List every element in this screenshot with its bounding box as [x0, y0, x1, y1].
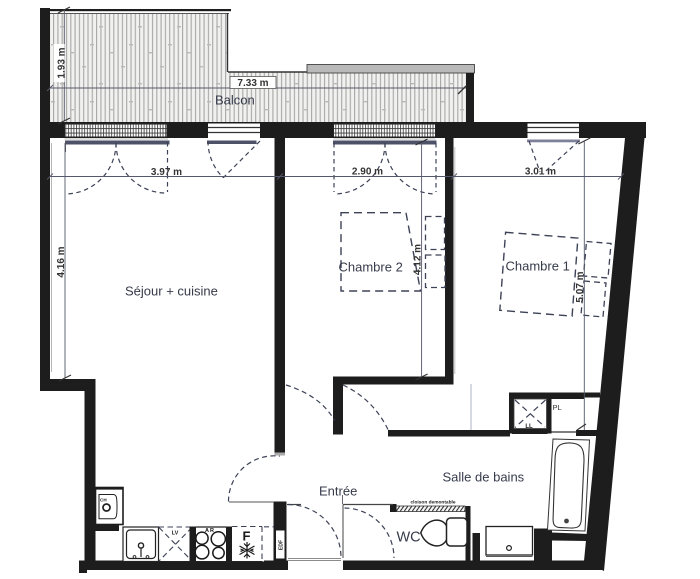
- svg-text:EDF: EDF: [279, 540, 285, 550]
- svg-text:LV: LV: [172, 531, 179, 537]
- svg-text:3.01 m: 3.01 m: [525, 167, 556, 178]
- svg-text:cloison demontable: cloison demontable: [410, 500, 455, 506]
- svg-text:7.33 m: 7.33 m: [237, 78, 268, 89]
- svg-text:LL: LL: [525, 424, 533, 430]
- svg-text:Entrée: Entrée: [319, 484, 357, 499]
- svg-text:F: F: [243, 529, 251, 544]
- svg-text:WC: WC: [397, 530, 421, 546]
- svg-text:Chambre 1: Chambre 1: [506, 259, 570, 274]
- svg-text:1.93 m: 1.93 m: [57, 47, 68, 78]
- svg-text:5.07 m: 5.07 m: [575, 271, 586, 302]
- svg-text:CH: CH: [100, 498, 107, 503]
- svg-text:4.16 m: 4.16 m: [56, 246, 67, 277]
- svg-text:3.97 m: 3.97 m: [151, 167, 182, 178]
- svg-text:Balcon: Balcon: [215, 93, 255, 108]
- svg-text:Chambre 2: Chambre 2: [339, 260, 403, 275]
- svg-text:2.90 m: 2.90 m: [352, 167, 383, 178]
- svg-text:Séjour + cuisine: Séjour + cuisine: [125, 284, 218, 299]
- svg-text:Salle de bains: Salle de bains: [443, 470, 525, 485]
- svg-text:PL: PL: [553, 403, 562, 412]
- svg-text:4.12 m: 4.12 m: [413, 244, 424, 275]
